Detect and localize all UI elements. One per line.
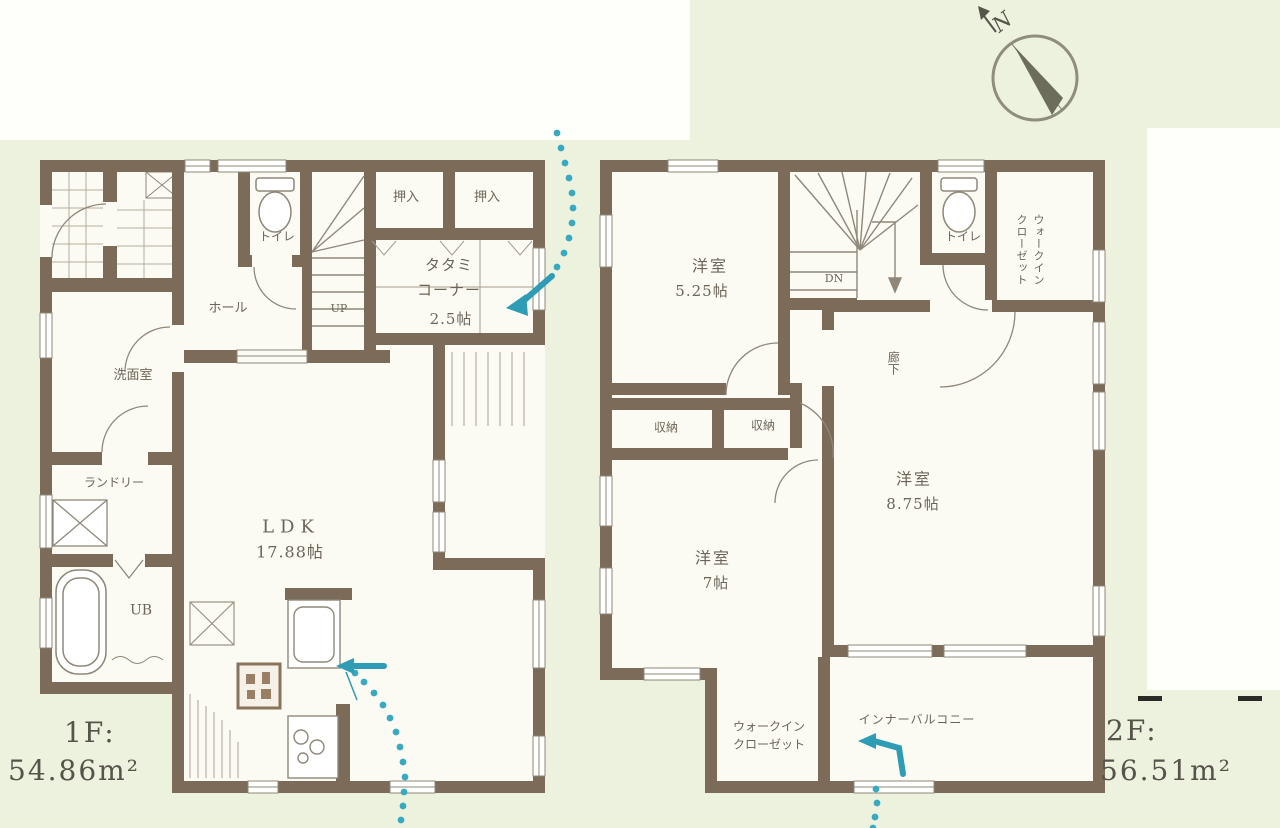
room-label-laundry: ランドリー (84, 477, 144, 490)
dash-marks (1138, 696, 1262, 701)
sliding-door (237, 350, 307, 363)
room-label-balcony: インナーバルコニー (859, 714, 976, 727)
room-label-storage-b: 収納 (751, 420, 775, 433)
floorplan-drawing (0, 0, 1280, 828)
room-label-toilet-1f: トイレ (259, 231, 295, 244)
wic-top-line2: クローゼット (1013, 189, 1030, 311)
room-label-tatami-3: 2.5帖 (430, 312, 473, 328)
floorplan-canvas: トイレ 押入 押入 タタミ コーナー 2.5帖 ホール UP 洗面室 ランドリー… (0, 0, 1280, 828)
room-label-ldk: LDK (262, 519, 320, 538)
room-label-hall: ホール (208, 302, 247, 316)
room-label-washroom: 洗面室 (113, 369, 152, 383)
room-label-bedroom1-size: 5.25帖 (675, 284, 728, 300)
room-label-tatami-1: タタミ (425, 258, 473, 274)
stairs-up-label: UP (331, 303, 348, 315)
room-label-storage-a: 収納 (654, 422, 678, 435)
room-label-wic-bottom-2: クローゼット (733, 739, 805, 752)
floor1-area-value: 54.86m² (8, 756, 140, 785)
room-label-bedroom2: 洋室 (896, 472, 932, 489)
toilet-1f-icon (256, 178, 294, 232)
room-label-closet-a: 押入 (393, 191, 419, 205)
room-label-wic-top: ウォークイン クローゼット (1013, 189, 1047, 311)
room-label-toilet-2f: トイレ (945, 231, 981, 244)
room-label-bath: UB (130, 604, 152, 619)
washer-pan-icon (53, 500, 107, 546)
refrigerator-mark-icon (190, 602, 234, 645)
room-label-hallway: 廊下 (887, 351, 900, 375)
room-label-bedroom1: 洋室 (692, 259, 728, 276)
room-label-bedroom3: 洋室 (695, 551, 731, 568)
stairs-down-label: DN (825, 273, 843, 285)
room-label-ldk-size: 17.88帖 (256, 545, 324, 562)
room-label-bedroom3-size: 7帖 (703, 576, 730, 592)
room-label-tatami-2: コーナー (417, 283, 481, 299)
room-label-bedroom2-size: 8.75帖 (886, 497, 939, 513)
floor2-area-label: 2F: (1106, 716, 1158, 745)
stamp-square (238, 664, 280, 708)
floor2-area-value: 56.51m² (1100, 756, 1232, 785)
floor1-area-label: 1F: (64, 718, 116, 747)
toilet-2f-icon (941, 178, 977, 232)
room-label-wic-bottom-1: ウォークイン (733, 721, 805, 734)
wic-top-line1: ウォークイン (1030, 189, 1047, 311)
room-label-closet-b: 押入 (474, 191, 500, 205)
